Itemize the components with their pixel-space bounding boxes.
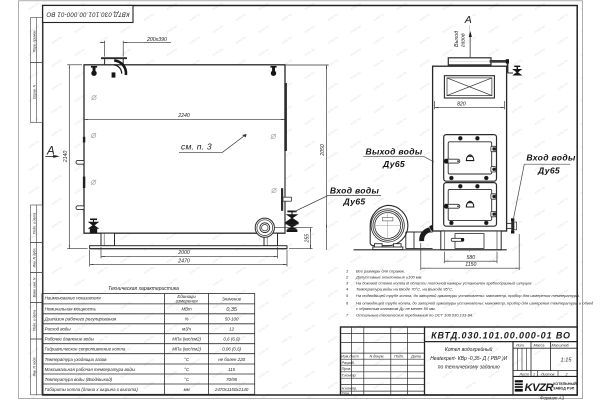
svg-text:Лит.: Лит.	[515, 344, 525, 348]
svg-text:Температура уходящих газов: Температура уходящих газов	[45, 357, 108, 362]
svg-text:Значение: Значение	[222, 297, 242, 302]
svg-text:газов: газов	[460, 33, 466, 47]
svg-text:с обратным клапаном Ду не мен: с обратным клапаном Ду не менее 50 мм.	[356, 306, 436, 311]
svg-text:Температура воды (Вход/выход): Температура воды (Вход/выход)	[45, 377, 113, 382]
svg-text:м3/ч: м3/ч	[182, 327, 192, 332]
svg-text:не более 220: не более 220	[218, 357, 245, 362]
svg-text:200х390: 200х390	[146, 37, 167, 43]
svg-text:Листов: Листов	[540, 372, 555, 376]
svg-text:Инв. N дубл.: Инв. N дубл.	[33, 248, 37, 268]
svg-text:2240: 2240	[177, 113, 190, 119]
svg-text:Техническая характеристика: Техническая характеристика	[108, 286, 179, 292]
svg-text:измерения: измерения	[176, 299, 199, 304]
svg-text:Н.контр.: Н.контр.	[342, 387, 358, 391]
svg-text:Изм.Лист: Изм.Лист	[341, 355, 358, 359]
svg-text:КОТЕЛЬНЫЙ: КОТЕЛЬНЫЙ	[553, 382, 577, 386]
svg-text:Подп.: Подп.	[394, 355, 404, 359]
svg-text:Разраб.: Разраб.	[342, 361, 355, 365]
svg-text:KVZR: KVZR	[525, 382, 554, 394]
svg-text:820: 820	[457, 102, 466, 108]
svg-text:Наименование показателя: Наименование показателя	[45, 295, 102, 300]
svg-text:N докум.: N докум.	[370, 355, 385, 359]
svg-text:Температура воды на Входе 70°: Температура воды на Входе 70°С, на Выход…	[356, 287, 453, 292]
svg-text:°С: °С	[184, 367, 190, 372]
svg-text:Номинальная мощность: Номинальная мощность	[45, 307, 97, 312]
svg-text:Вход воды: Вход воды	[526, 153, 576, 163]
svg-text:2470: 2470	[177, 258, 190, 264]
svg-text:°С: °С	[184, 357, 190, 362]
svg-text:1150: 1150	[465, 262, 476, 268]
svg-text:Рабочее давление воды: Рабочее давление воды	[45, 337, 95, 342]
svg-text:Расход воды: Расход воды	[45, 327, 72, 332]
svg-text:Взам. инв. N: Взам. инв. N	[33, 277, 37, 297]
svg-text:Максимальная рабочая температу: Максимальная рабочая температура воды	[45, 367, 136, 372]
svg-text:2050: 2050	[320, 144, 326, 157]
svg-text:Перв. примен.: Перв. примен.	[33, 30, 37, 53]
svg-text:Дата: Дата	[410, 355, 421, 359]
svg-text:12: 12	[229, 327, 234, 332]
svg-text:Остальные технические требован: Остальные технические требования по ОСТ …	[356, 313, 473, 318]
svg-text:На отводящей трубе котла, до з: На отводящей трубе котла, до запорной ар…	[356, 300, 594, 305]
svg-text:2000: 2000	[177, 250, 190, 256]
svg-text:На подводящей трубе котла, д: На подводящей трубе котла, до запорной а…	[356, 293, 580, 298]
svg-text:см. п. 3: см. п. 3	[181, 142, 212, 152]
svg-text:мм: мм	[184, 387, 190, 392]
svg-text:1:15: 1:15	[561, 358, 573, 364]
svg-text:255: 255	[304, 234, 310, 244]
svg-text:МПа (кгс/см2): МПа (кгс/см2)	[172, 347, 201, 352]
svg-text:Подп. и дата: Подп. и дата	[33, 310, 37, 331]
svg-text:Габариты котла (длина х ширина: Габариты котла (длина х ширина х высота)	[45, 387, 139, 392]
svg-text:2140: 2140	[63, 151, 69, 164]
svg-text:0,6 (6,0): 0,6 (6,0)	[223, 337, 240, 342]
svg-text:Ду65: Ду65	[343, 197, 366, 207]
svg-text:Котел водогрейный: Котел водогрейный	[445, 346, 493, 353]
svg-text:по техническому заданию: по техническому заданию	[438, 364, 500, 370]
svg-text:2470х1150х2140: 2470х1150х2140	[214, 387, 249, 392]
svg-text:50-100: 50-100	[225, 317, 239, 322]
svg-text:Масштаб: Масштаб	[552, 344, 570, 348]
svg-text:1: 1	[533, 372, 535, 376]
svg-text:115: 115	[228, 367, 236, 372]
svg-text:Вход воды: Вход воды	[330, 186, 380, 196]
svg-text:Справ. N: Справ. N	[33, 84, 37, 99]
svg-text:0,06 (0,6): 0,06 (0,6)	[222, 347, 241, 352]
svg-text:580: 580	[466, 255, 475, 261]
svg-text:КВТД.030.101.00.000-01 ВО: КВТД.030.101.00.000-01 ВО	[431, 330, 571, 340]
svg-text:Допустимые отклонения ±100 мм: Допустимые отклонения ±100 мм.	[355, 275, 422, 280]
svg-text:Утв.: Утв.	[342, 392, 350, 396]
svg-text:Ду65: Ду65	[537, 165, 560, 175]
svg-text:А: А	[464, 14, 472, 26]
svg-text:2: 2	[565, 372, 568, 376]
svg-text:Диапазон рабочего регулировани: Диапазон рабочего регулирования	[44, 317, 117, 322]
svg-text:Все размеры для справок.: Все размеры для справок.	[356, 269, 405, 274]
svg-text:Ду65: Ду65	[382, 159, 405, 169]
svg-text:%: %	[185, 317, 189, 322]
svg-text:МВт: МВт	[181, 307, 192, 312]
svg-text:На боковой стенке котла В обла: На боковой стенке котла В области топочн…	[356, 281, 532, 286]
svg-text:Выход воды: Выход воды	[366, 146, 423, 156]
svg-text:Гидравлическое сопротивление к: Гидравлическое сопротивление котла	[45, 347, 126, 352]
svg-text:КВТД.030.101.00.000-01 ВО: КВТД.030.101.00.000-01 ВО	[46, 11, 129, 18]
svg-text:Подп. и дата: Подп. и дата	[33, 213, 37, 234]
svg-text:Инв. N подл.: Инв. N подл.	[33, 357, 37, 377]
svg-text:Масса: Масса	[534, 344, 545, 348]
svg-text:Heatexpert- КВр -0,35- Д ( РВР: Heatexpert- КВр -0,35- Д ( РВР )И	[430, 356, 507, 362]
svg-text:Выход: Выход	[454, 31, 460, 47]
svg-text:Лист: Лист	[519, 372, 530, 376]
svg-text:0,35: 0,35	[226, 307, 237, 313]
svg-text:°С: °С	[184, 377, 190, 382]
svg-text:ЗАВОД РЭП: ЗАВОД РЭП	[553, 387, 575, 391]
svg-text:1: 1	[346, 269, 348, 274]
svg-text:Т.контр.: Т.контр.	[342, 374, 357, 378]
svg-text:МПа (кгс/см2): МПа (кгс/см2)	[172, 337, 201, 342]
svg-text:70/95: 70/95	[226, 377, 238, 382]
svg-text:Формат А3: Формат А3	[540, 395, 565, 400]
svg-text:Пров.: Пров.	[342, 367, 352, 371]
